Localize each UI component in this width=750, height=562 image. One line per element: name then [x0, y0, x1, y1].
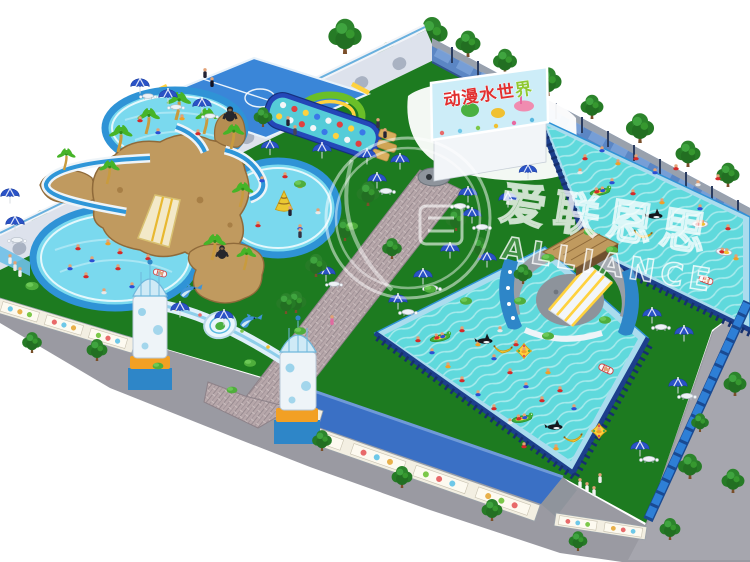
billboard: 动漫水世界 [431, 67, 548, 181]
waterpark-scene: 动漫水世界 [0, 0, 750, 562]
billboard-title-accent: 界 [514, 79, 535, 101]
waterpark-render: 动漫水世界 [0, 0, 750, 562]
billboard-art-pool [514, 101, 534, 112]
